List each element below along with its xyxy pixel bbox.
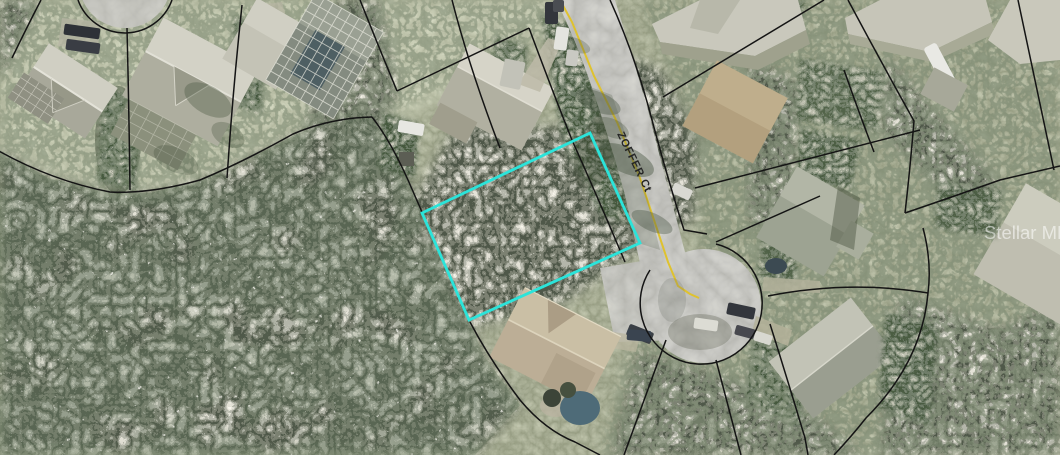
svg-text:Stellar MLS: Stellar MLS xyxy=(984,222,1060,243)
